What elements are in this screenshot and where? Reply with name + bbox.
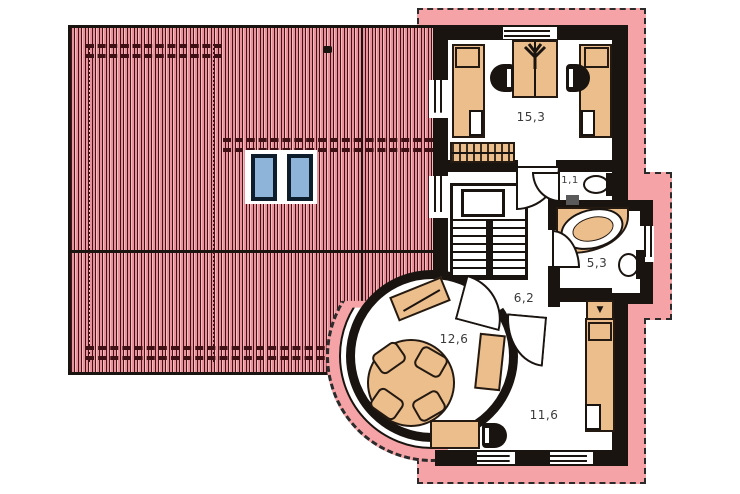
plant-icon — [520, 42, 550, 72]
chair-left — [490, 64, 514, 92]
stair-stringer — [486, 219, 493, 277]
tower-chair-bottom — [482, 423, 507, 448]
blanket-fold-left — [469, 110, 483, 136]
room-label-tower-room: 12,6 — [433, 332, 475, 346]
roof-dashed-band — [86, 44, 222, 48]
pillow-bottom — [588, 322, 612, 341]
wall-bedroom-bottom-right — [556, 160, 612, 172]
window-bottom-2 — [550, 452, 593, 464]
window-top — [503, 27, 557, 39]
blanket-fold-right — [581, 110, 595, 136]
wall-bottom — [435, 450, 628, 466]
bath-toilet-tank — [636, 250, 645, 279]
wardrobe-marker: ▼ — [597, 305, 604, 315]
skylight-window — [287, 154, 313, 201]
roof-dashed-band — [86, 54, 222, 58]
roof-vent-mark — [323, 46, 332, 53]
room-label-bedroom-top: 15,3 — [511, 110, 551, 124]
window-bottom-1 — [477, 452, 515, 464]
skylight-window — [251, 154, 277, 201]
blanket-fold-bottom — [585, 404, 601, 430]
window-left-1 — [429, 80, 448, 118]
stair-landing — [461, 189, 505, 217]
roof-hidden-line — [213, 44, 215, 362]
window-left-2 — [429, 176, 448, 218]
wc-toilet-tank — [606, 173, 615, 196]
floor-plan: ▼ 15,3 1,1 5,3 6,2 12,6 11,6 — [0, 0, 740, 494]
stair-railing-shelf — [450, 142, 515, 163]
room-label-wc: 1,1 — [558, 175, 582, 186]
shelf-mid-line — [452, 152, 513, 154]
roof-hidden-line — [88, 44, 90, 362]
tower-desk-bottom — [430, 420, 480, 449]
pillow-left — [455, 47, 480, 68]
pillow-right — [584, 47, 609, 68]
room-label-bedroom-bottom: 11,6 — [523, 408, 565, 422]
roof-ridge-line — [71, 250, 433, 253]
room-label-bathroom: 5,3 — [580, 256, 614, 270]
wc-mat — [566, 195, 579, 205]
room-label-hall: 6,2 — [506, 291, 542, 305]
roof-dashed-band — [223, 138, 433, 142]
